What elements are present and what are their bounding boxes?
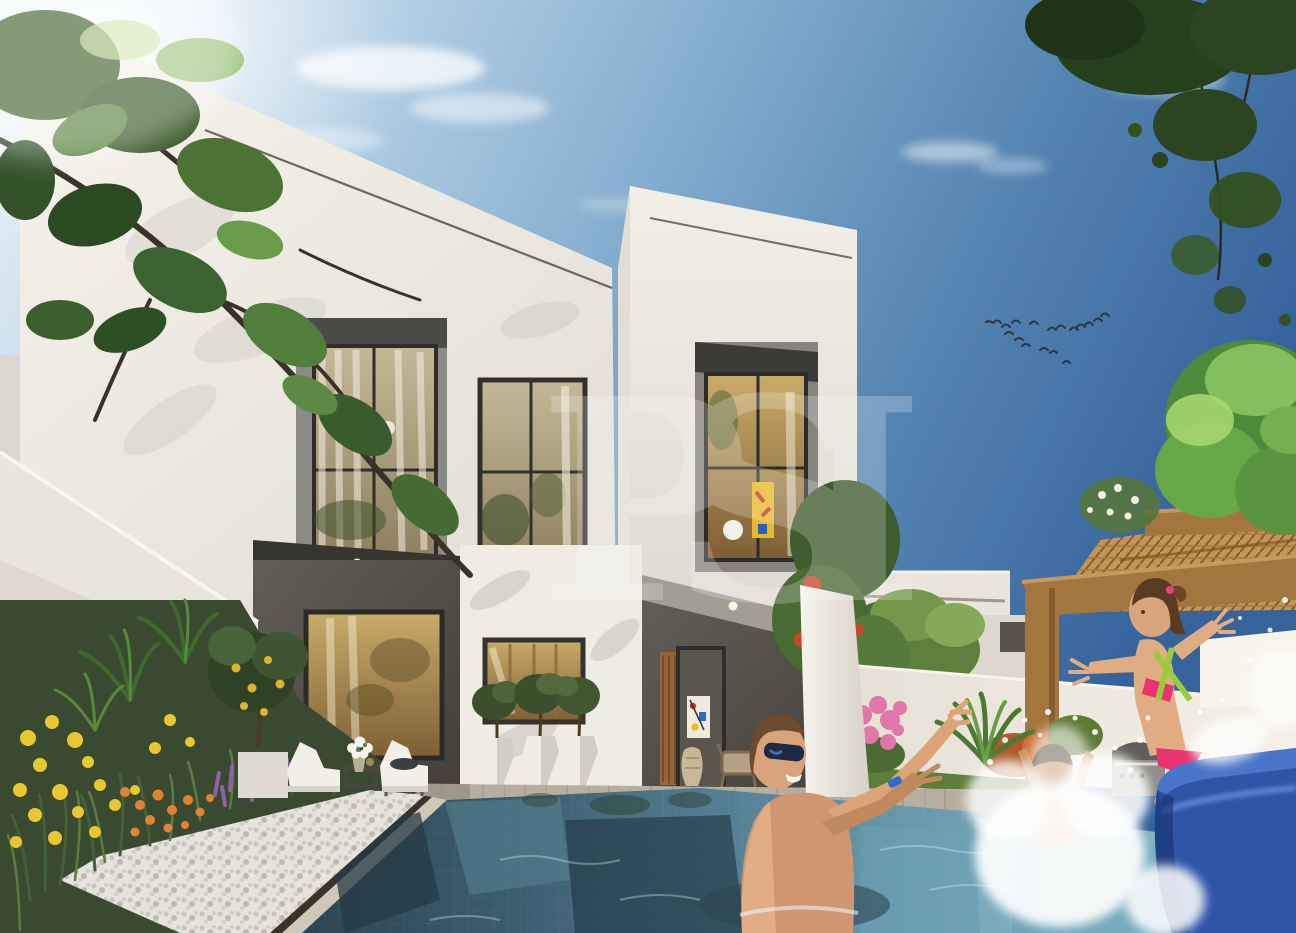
villa-pool-scene: PSI [0,0,1296,933]
patio-vase [681,747,702,786]
man-head [750,714,807,789]
white-blossom-bush [1080,477,1160,533]
bowl [366,758,374,766]
hair-scrunchie [1166,586,1174,594]
rendering-canvas: PSI [0,0,1296,933]
towel [390,758,418,770]
